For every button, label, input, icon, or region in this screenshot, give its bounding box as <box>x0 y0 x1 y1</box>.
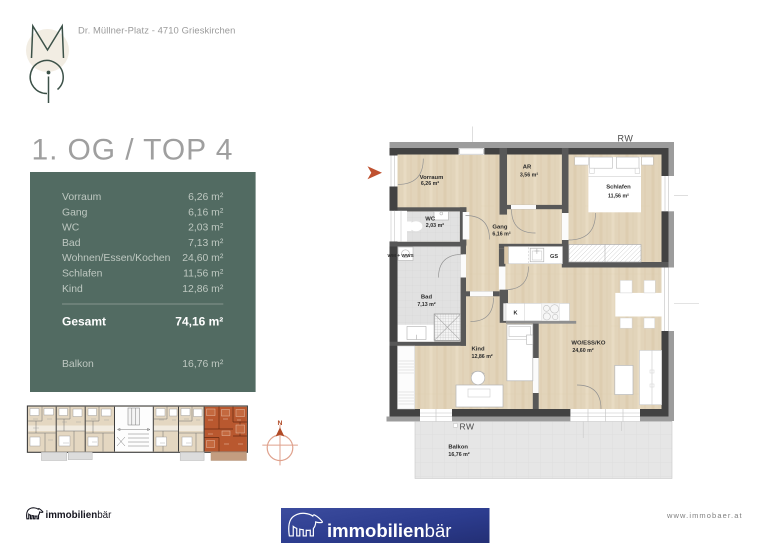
svg-text:RW: RW <box>618 134 634 144</box>
svg-text:AR: AR <box>523 165 532 171</box>
svg-text:11,56 m²: 11,56 m² <box>183 269 224 280</box>
svg-text:11,56 m²: 11,56 m² <box>608 194 629 200</box>
svg-text:WM + WWS: WM + WWS <box>388 253 415 259</box>
svg-text:Balkon: Balkon <box>62 359 94 370</box>
svg-text:WO/ESS/KO: WO/ESS/KO <box>571 341 605 347</box>
svg-text:24,60 m²: 24,60 m² <box>182 253 224 264</box>
svg-text:Kind: Kind <box>62 284 83 295</box>
svg-text:GS: GS <box>550 254 558 260</box>
svg-text:16,76 m²: 16,76 m² <box>448 452 469 458</box>
svg-text:WC: WC <box>62 223 80 234</box>
svg-text:16,76 m²: 16,76 m² <box>182 359 224 370</box>
svg-text:Schlafen: Schlafen <box>62 269 103 280</box>
svg-text:24,60 m²: 24,60 m² <box>572 348 593 354</box>
svg-text:Dr. Müllner-Platz - 4710 Gries: Dr. Müllner-Platz - 4710 Grieskirchen <box>78 25 235 36</box>
svg-text:7,13 m²: 7,13 m² <box>417 302 435 308</box>
svg-text:6,16 m²: 6,16 m² <box>188 207 224 218</box>
svg-text:74,16 m²: 74,16 m² <box>175 315 223 329</box>
svg-text:Gang: Gang <box>62 207 88 218</box>
svg-text:6,26 m²: 6,26 m² <box>188 192 224 203</box>
svg-text:Schlafen: Schlafen <box>606 185 631 191</box>
svg-text:Vorraum: Vorraum <box>62 192 101 203</box>
svg-text:immobilienbär: immobilienbär <box>46 510 113 521</box>
svg-text:WC: WC <box>425 217 436 223</box>
svg-text:K: K <box>514 311 518 317</box>
svg-text:Kind: Kind <box>472 347 485 353</box>
svg-text:12,86 m²: 12,86 m² <box>472 354 493 360</box>
svg-text:Gang: Gang <box>492 225 507 231</box>
svg-text:6,26 m²: 6,26 m² <box>421 181 439 187</box>
svg-text:Gesamt: Gesamt <box>62 315 106 329</box>
svg-text:Balkon: Balkon <box>448 445 468 451</box>
svg-text:Bad: Bad <box>421 295 433 301</box>
svg-text:7,13 m²: 7,13 m² <box>188 238 224 249</box>
svg-text:www.immobaer.at: www.immobaer.at <box>666 511 743 520</box>
svg-text:12,86 m²: 12,86 m² <box>182 284 224 295</box>
svg-text:N: N <box>278 420 283 427</box>
svg-text:2,03 m²: 2,03 m² <box>426 223 444 229</box>
svg-text:6,16 m²: 6,16 m² <box>492 232 510 238</box>
svg-text:Bad: Bad <box>62 238 81 249</box>
svg-text:1. OG / TOP 4: 1. OG / TOP 4 <box>32 134 234 167</box>
svg-text:immobilienbär: immobilienbär <box>327 520 451 541</box>
svg-text:RW: RW <box>460 422 475 432</box>
svg-text:3,56 m²: 3,56 m² <box>520 172 538 178</box>
svg-text:2,03 m²: 2,03 m² <box>188 223 224 234</box>
svg-text:Wohnen/Essen/Kochen: Wohnen/Essen/Kochen <box>62 253 171 264</box>
